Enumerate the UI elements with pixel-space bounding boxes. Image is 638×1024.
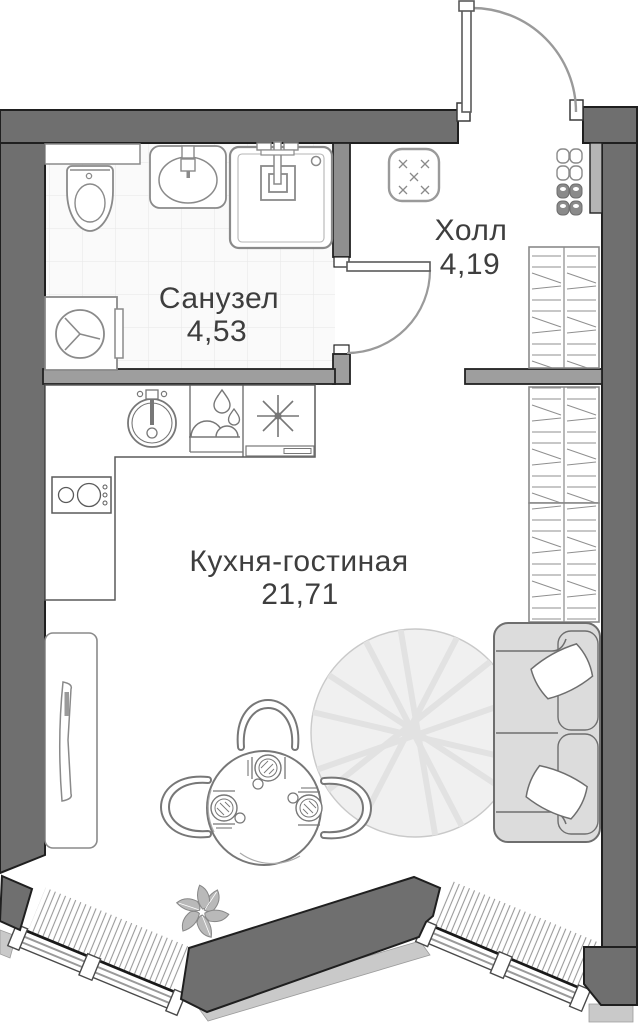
entry-door-symbol [457,1,583,121]
top-right-wall-block [583,107,637,143]
floor-plan-page: Санузел 4,53 Холл 4,19 Кухня-гостиная 21… [0,0,638,1024]
dining-chair-left [161,777,211,838]
plant-symbol [176,885,229,938]
pouf-symbol [389,149,439,201]
toilet-shelf [45,144,140,164]
duct [590,143,602,213]
hall-closet-symbol [529,247,599,368]
bathroom-kitchen-partition [43,369,335,384]
top-wall [0,110,458,143]
entry-door-leaf [462,6,471,112]
bottom-right-corner-wall [584,947,637,1005]
shoes-symbol [557,149,582,215]
floor-plan-svg: Санузел 4,53 Холл 4,19 Кухня-гостиная 21… [0,0,638,1024]
tv-stand-symbol [45,633,97,848]
closet-symbol-upper [529,387,599,503]
bathroom-door-jamb-bottom [334,345,349,354]
dining-chair-top [238,700,299,750]
left-wall [0,110,45,873]
closet-symbol-lower [529,503,599,622]
cooktop-symbol [52,477,111,513]
room-area-kitchen-living: 21,71 [261,578,339,611]
bathroom-right-wall [333,143,350,257]
rug-symbol [311,626,519,840]
shower-symbol [230,142,332,248]
window-left-group [8,883,203,1016]
room-area-hall: 4,19 [440,248,500,281]
bathroom-door-swing-arc [347,270,430,353]
room-label-kitchen-living: Кухня-гостиная [189,545,408,578]
room-area-bathroom: 4,53 [187,315,247,348]
bathroom-door-leaf [347,262,430,271]
window-right-group [416,877,609,1011]
bathroom-door-symbol [347,262,430,353]
left-bay-pier [0,876,32,930]
hall-partition [465,369,602,384]
entry-door-swing-arc [472,8,576,112]
right-wall [602,143,637,951]
sofa-symbol [494,623,600,842]
bathroom-sink-symbol [150,146,226,208]
room-label-hall: Холл [435,214,508,247]
bay-chevron-wall [181,877,440,1012]
washing-machine-symbol [45,297,123,370]
room-label-bathroom: Санузел [159,282,279,315]
